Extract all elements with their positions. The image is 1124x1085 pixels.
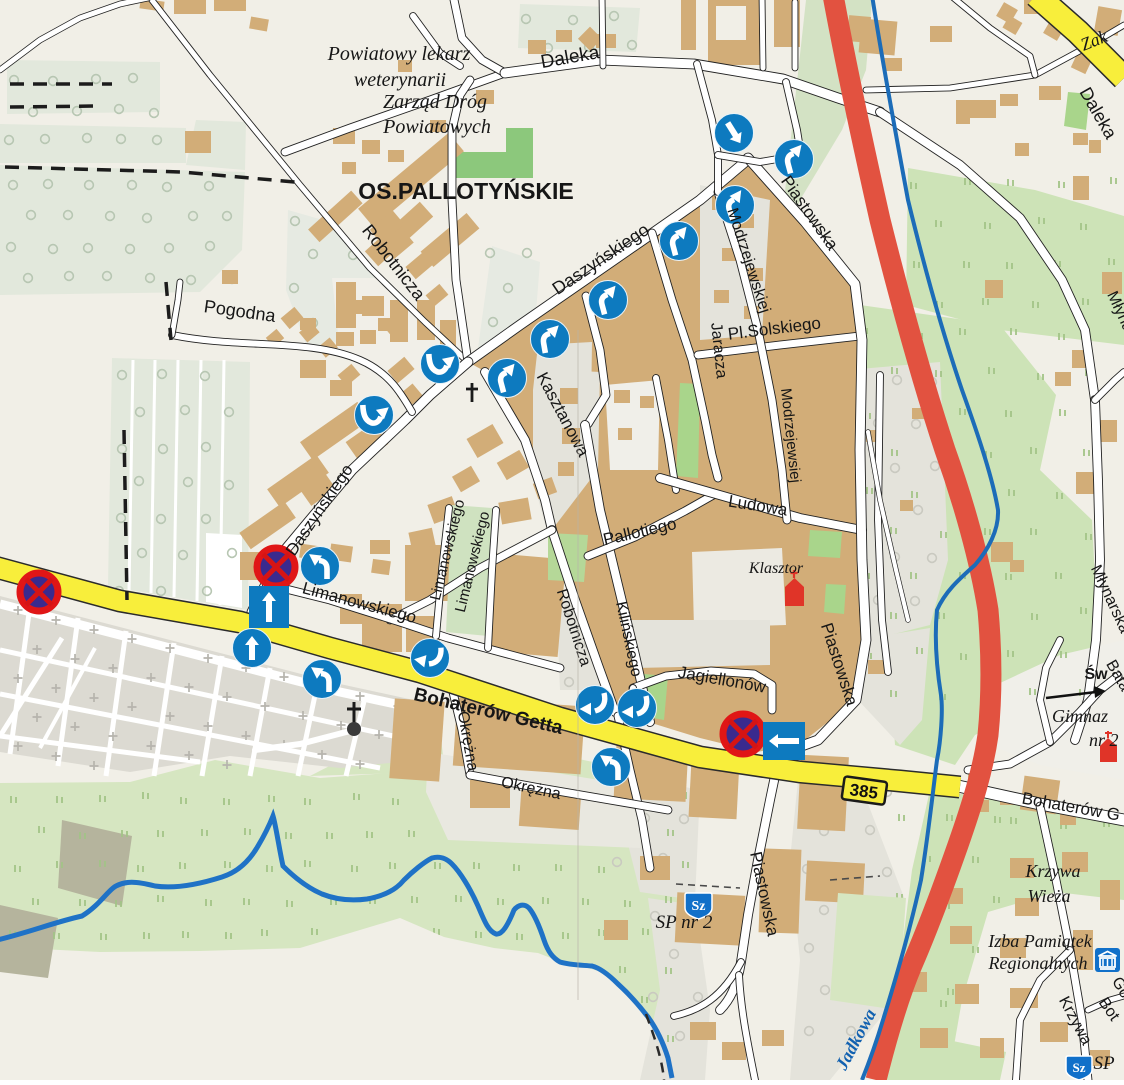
svg-text:OS.PALLOTYŃSKIE: OS.PALLOTYŃSKIE: [358, 177, 574, 204]
svg-text:Wieża: Wieża: [1028, 886, 1071, 906]
svg-text:Izba Pamiątek: Izba Pamiątek: [987, 931, 1092, 951]
svg-text:Klasztor: Klasztor: [748, 560, 804, 577]
svg-text:SP nr 2: SP nr 2: [656, 912, 713, 933]
svg-text:Zarząd Dróg: Zarząd Dróg: [383, 91, 487, 113]
svg-text:nr 2: nr 2: [1089, 730, 1119, 750]
svg-text:Gimnaz: Gimnaz: [1052, 706, 1108, 726]
svg-text:Krzywa: Krzywa: [1024, 861, 1080, 881]
svg-text:Św: Św: [1084, 664, 1108, 683]
svg-text:SP: SP: [1093, 1053, 1115, 1074]
svg-text:Powiatowy lekarz: Powiatowy lekarz: [327, 43, 471, 65]
svg-text:Sz: Sz: [1073, 1060, 1086, 1075]
svg-text:Powiatowych: Powiatowych: [382, 116, 491, 138]
svg-text:Regionalnych: Regionalnych: [988, 953, 1088, 973]
svg-text:weterynarii: weterynarii: [354, 69, 446, 91]
svg-text:385: 385: [848, 780, 879, 803]
